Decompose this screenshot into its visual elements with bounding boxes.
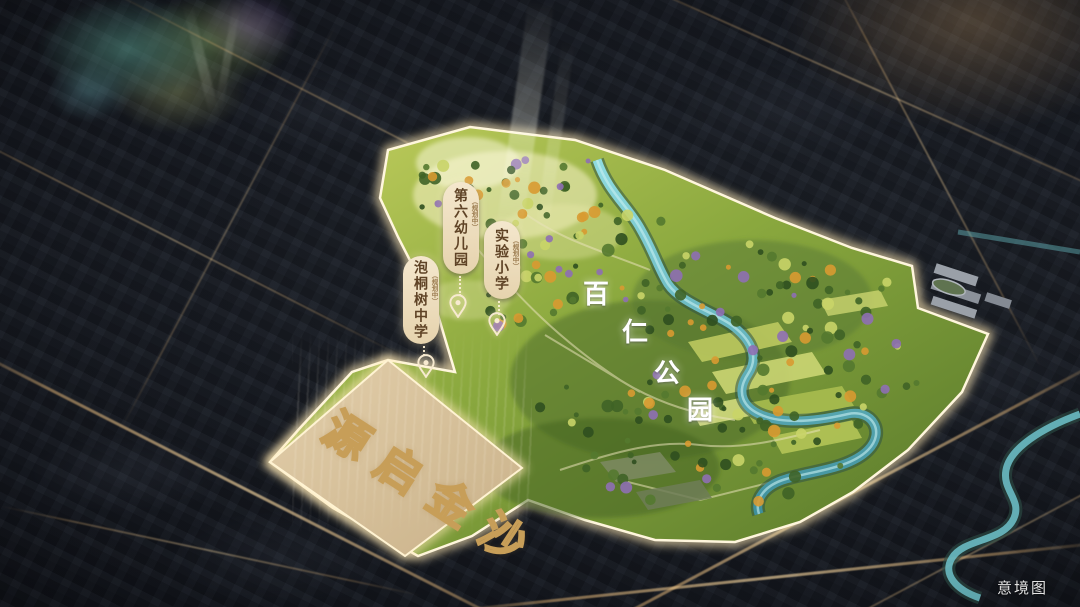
city-river-bottom-right	[949, 414, 1080, 598]
park-map-graphic	[0, 0, 1080, 607]
park-name-char: 公	[654, 353, 680, 390]
location-pin-icon	[449, 294, 467, 318]
leader-line	[459, 276, 461, 296]
label-pill-primary-school: （规划中） 实验小学	[484, 221, 520, 299]
label-pill-middle-school: （规划中） 泡桐树中学	[403, 256, 439, 344]
location-pin-icon	[417, 354, 435, 378]
park-name-char: 百	[583, 274, 609, 311]
label-pill-kindergarten: （规划中） 第六幼儿园	[443, 182, 479, 274]
aerial-render: （规划中） 第六幼儿园 （规划中） 实验小学 （规划中） 泡桐树中学 百 仁 公…	[0, 0, 1080, 607]
location-pin-icon	[488, 312, 506, 336]
park-name-char: 仁	[622, 312, 648, 349]
label-note: （规划中）	[428, 272, 438, 305]
park-name-char: 园	[687, 390, 713, 427]
city-channel-top-right	[958, 232, 1080, 252]
label-note: （规划中）	[509, 237, 519, 270]
render-caption: 意境图	[997, 577, 1048, 598]
label-note: （规划中）	[468, 198, 478, 231]
